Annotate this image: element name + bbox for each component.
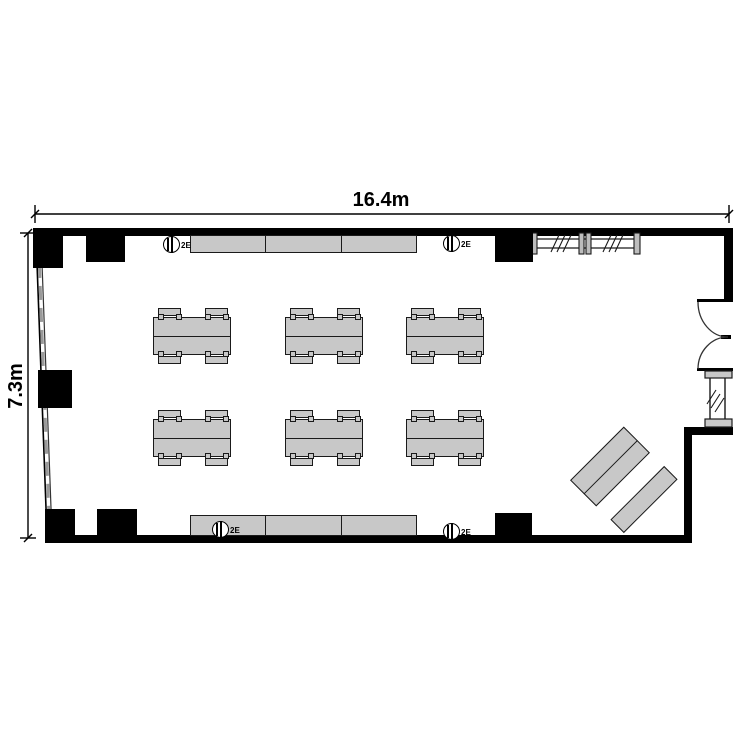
table-group xyxy=(153,308,231,367)
outlet-label: 2E xyxy=(230,526,240,535)
floor-plan-drawing xyxy=(0,0,750,750)
chair xyxy=(337,410,360,418)
chair xyxy=(290,458,313,466)
table xyxy=(285,419,363,457)
chair xyxy=(205,410,228,418)
chair xyxy=(411,458,434,466)
counter-segment xyxy=(342,236,416,252)
table-group xyxy=(406,410,484,469)
column xyxy=(45,509,75,535)
chair xyxy=(458,458,481,466)
chair xyxy=(205,356,228,364)
chair xyxy=(458,356,481,364)
chair xyxy=(158,410,181,418)
chair xyxy=(458,308,481,316)
chair xyxy=(337,458,360,466)
table xyxy=(406,317,484,355)
outlet-label: 2E xyxy=(181,241,191,250)
column xyxy=(495,513,532,535)
column xyxy=(86,228,125,262)
table xyxy=(153,317,231,355)
counter-top xyxy=(190,235,417,253)
chair xyxy=(290,356,313,364)
counter-segment xyxy=(342,516,416,535)
outlet-icon xyxy=(212,521,229,538)
partition-top-right xyxy=(532,233,640,254)
counter-segment xyxy=(266,236,341,252)
table-group xyxy=(406,308,484,367)
chair xyxy=(158,458,181,466)
column xyxy=(33,228,63,268)
outlet-label: 2E xyxy=(461,240,471,249)
table-group xyxy=(153,410,231,469)
table xyxy=(406,419,484,457)
column xyxy=(495,228,533,262)
counter-segment xyxy=(266,516,341,535)
chair xyxy=(290,308,313,316)
walls xyxy=(33,228,733,543)
table-group xyxy=(285,308,363,367)
chair xyxy=(337,356,360,364)
table-group xyxy=(285,410,363,469)
chair xyxy=(458,410,481,418)
chair xyxy=(205,308,228,316)
chair xyxy=(205,458,228,466)
floor-plan: 16.4m 7.3m xyxy=(0,0,750,750)
dimension-label-height: 7.3m xyxy=(5,326,27,446)
window-right xyxy=(705,371,732,427)
table xyxy=(285,317,363,355)
column xyxy=(38,370,72,408)
dimension-label-width: 16.4m xyxy=(321,189,441,211)
counter-segment xyxy=(191,516,266,535)
chair xyxy=(337,308,360,316)
chair xyxy=(158,356,181,364)
outlet-icon xyxy=(443,523,460,540)
chair xyxy=(411,308,434,316)
outlet-icon xyxy=(163,236,180,253)
outlet-label: 2E xyxy=(461,528,471,537)
outlet-icon xyxy=(443,235,460,252)
chair xyxy=(411,356,434,364)
counter-segment xyxy=(191,236,266,252)
column xyxy=(97,509,137,535)
chair xyxy=(158,308,181,316)
chair xyxy=(411,410,434,418)
table xyxy=(153,419,231,457)
chair xyxy=(290,410,313,418)
